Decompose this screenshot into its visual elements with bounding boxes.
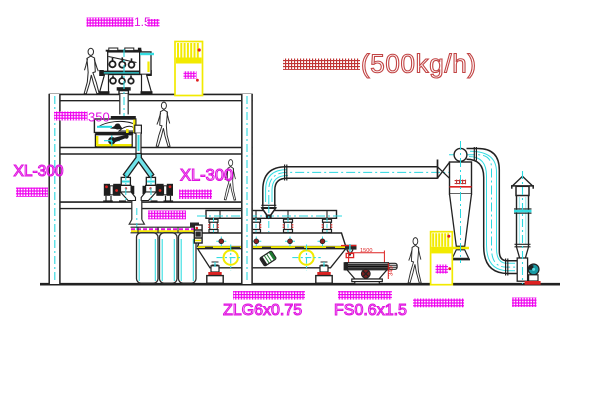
- svg-text:(500kg/h): (500kg/h): [361, 49, 476, 79]
- svg-text:FS0.6x1.5: FS0.6x1.5: [334, 302, 407, 319]
- svg-text:XL-300: XL-300: [14, 163, 64, 180]
- svg-text:345: 345: [389, 265, 395, 276]
- svg-text:350: 350: [88, 110, 110, 125]
- svg-text:ZLG6x0.75: ZLG6x0.75: [223, 302, 302, 319]
- svg-text:1500: 1500: [360, 248, 372, 254]
- svg-text:XL-300: XL-300: [180, 167, 233, 185]
